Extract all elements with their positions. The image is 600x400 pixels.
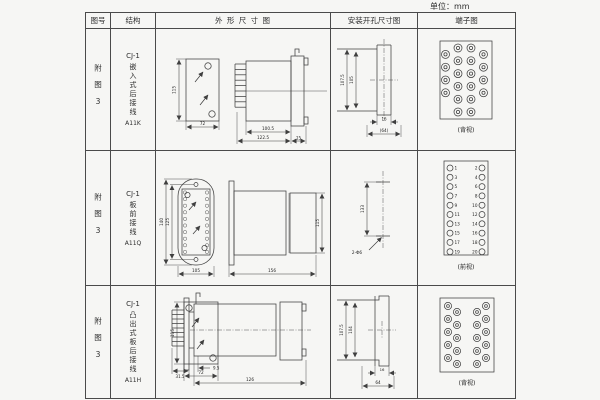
terminal-number: 15 [455, 231, 461, 236]
terminal-view-label: (前视) [458, 263, 475, 271]
terminal-drawing-a11h: (背视) [418, 286, 516, 399]
install-cell-row2: 133 2-Φ6 [331, 151, 418, 286]
side-view: 115 156 [229, 181, 325, 277]
side-view: 100.5 122.5 15 [235, 49, 327, 144]
terminal-numbers: 1 2 3 4 5 6 7 8 9 10 11 12 13 14 15 16 1 [455, 166, 478, 255]
dim-outer-height: 140 [159, 218, 164, 226]
outline-drawing-a11h: 115 72 [156, 286, 331, 399]
type-code-row2: A11Q [125, 240, 141, 247]
structure-cell-row2: CJ-1 板前接线 A11Q [111, 151, 156, 286]
document-page: 单位：mm 图号 结构 外 形 尺 寸 图 安装开孔尺寸图 端子图 附图3 CJ… [0, 0, 600, 400]
install-drawing-a11h: 107.5 104 16 64 [331, 286, 418, 399]
install-cell-row3: 107.5 104 16 64 [331, 286, 418, 399]
terminal-number: 9 [455, 203, 458, 208]
spec-table: 图号 结构 外 形 尺 寸 图 安装开孔尺寸图 端子图 附图3 CJ-1 嵌入式… [85, 12, 516, 399]
dim-gap-length: 9.5 [213, 366, 220, 371]
terminal-view-label: (背视) [459, 379, 476, 387]
dim-front-width: 72 [200, 121, 206, 126]
dim-outer-width: (64) [380, 128, 389, 133]
structure-desc-row1: 嵌入式后接线 [128, 63, 138, 117]
dim-front-height: 115 [172, 86, 177, 94]
front-view: 140 125 105 [159, 179, 214, 277]
unit-label: 单位：mm [430, 1, 470, 12]
terminal-number: 8 [475, 194, 478, 199]
terminal-number: 17 [455, 240, 461, 245]
structure-desc-row2: 板前接线 [128, 201, 138, 237]
fig-no-cell-row2: 附图3 [86, 151, 111, 286]
terminal-number: 6 [475, 184, 478, 189]
terminal-number: 20 [472, 249, 478, 254]
fig-no-cell-row3: 附图3 [86, 286, 111, 399]
model-row2: CJ-1 [126, 190, 140, 198]
dim-total-length: 156 [268, 268, 276, 273]
dim-rear-height: 115 [315, 219, 320, 227]
terminal-number: 18 [472, 240, 478, 245]
terminal-number: 3 [455, 175, 458, 180]
terminal-cell-row3: (背视) [418, 286, 516, 399]
side-view: 31.5 9.5 126 [172, 293, 311, 386]
fig-no-row3: 附图3 [93, 317, 104, 368]
terminal-drawing-a11k: (背视) [418, 29, 516, 151]
fig-no-row1: 附图3 [93, 64, 104, 115]
terminal-number: 4 [475, 175, 478, 180]
terminal-number: 13 [455, 221, 461, 226]
install-drawing-a11q: 133 2-Φ6 [331, 151, 418, 286]
terminal-number: 1 [455, 166, 458, 171]
install-cell-row1: 107.5 105 16 (64) [331, 29, 418, 151]
header-install-dims: 安装开孔尺寸图 [331, 13, 418, 29]
model-row3: CJ-1 [126, 300, 140, 308]
header-outline-dims: 外 形 尺 寸 图 [156, 13, 331, 29]
dim-install-inner-h: 105 [349, 76, 354, 84]
dim-slot-width: 16 [381, 116, 387, 121]
dim-total-length: 122.5 [257, 135, 269, 140]
header-fig-no: 图号 [86, 13, 111, 29]
terminal-number: 16 [472, 231, 478, 236]
terminal-number: 7 [455, 194, 458, 199]
dim-hole-pitch: 133 [360, 205, 365, 213]
dim-proj-length: 31.5 [176, 374, 185, 379]
fig-no-row2: 附图3 [93, 193, 104, 244]
type-code-row3: A11H [125, 377, 141, 384]
header-structure: 结构 [111, 13, 156, 29]
dim-flange-width: 15 [296, 135, 302, 140]
dim-outer-width: 64 [375, 380, 381, 385]
dim-slot-width: 16 [380, 367, 385, 372]
outline-cell-row2: 140 125 105 [156, 151, 331, 286]
dim-front-width: 105 [192, 268, 200, 273]
terminal-number: 11 [455, 212, 461, 217]
model-row1: CJ-1 [126, 52, 140, 60]
outline-cell-row1: 115 72 [156, 29, 331, 151]
terminal-number: 5 [455, 184, 458, 189]
install-drawing-a11k: 107.5 105 16 (64) [331, 29, 418, 151]
dim-front-width: 72 [198, 370, 204, 375]
front-view: 115 72 [172, 59, 220, 130]
terminal-grid [444, 302, 489, 367]
terminal-number: 19 [455, 249, 461, 254]
terminal-grid [447, 165, 485, 255]
dim-install-outer-h: 107.5 [339, 324, 344, 336]
fig-no-cell-row1: 附图3 [86, 29, 111, 151]
terminal-cell-row1: (背视) [418, 29, 516, 151]
type-code-row1: A11K [125, 120, 141, 127]
dim-install-outer-h: 107.5 [340, 74, 345, 86]
dim-install-inner-h: 104 [348, 326, 353, 334]
dim-inner-height: 125 [165, 218, 170, 226]
dim-body-length: 100.5 [262, 126, 274, 131]
outline-drawing-a11k: 115 72 [156, 29, 331, 151]
terminal-number: 14 [472, 221, 478, 226]
structure-cell-row1: CJ-1 嵌入式后接线 A11K [111, 29, 156, 151]
terminal-grid [442, 44, 488, 116]
terminal-number: 2 [475, 166, 478, 171]
terminal-drawing-a11q: 1 2 3 4 5 6 7 8 9 10 11 12 13 14 15 16 1 [418, 151, 516, 286]
header-terminal-diagram: 端子图 [418, 13, 516, 29]
terminal-number: 10 [472, 203, 478, 208]
terminal-number: 12 [472, 212, 478, 217]
outline-cell-row3: 115 72 [156, 286, 331, 399]
hole-spec-label: 2-Φ6 [352, 250, 362, 255]
outline-drawing-a11q: 140 125 105 [156, 151, 331, 286]
structure-desc-row3: 凸出式板后接线 [128, 311, 138, 374]
terminal-cell-row2: 1 2 3 4 5 6 7 8 9 10 11 12 13 14 15 16 1 [418, 151, 516, 286]
terminal-view-label: (背视) [458, 126, 475, 134]
dim-total-length: 126 [246, 377, 254, 382]
structure-cell-row3: CJ-1 凸出式板后接线 A11H [111, 286, 156, 399]
